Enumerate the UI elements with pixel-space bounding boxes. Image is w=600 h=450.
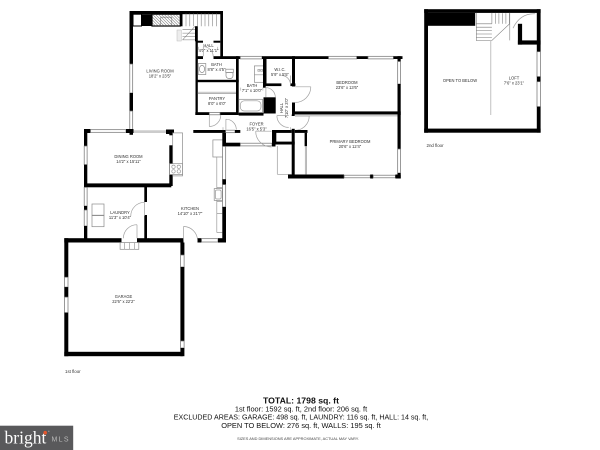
svg-text:20'6" x 12'4": 20'6" x 12'4" — [339, 144, 362, 149]
svg-text:23'6" x 13'6": 23'6" x 13'6" — [336, 85, 359, 90]
svg-text:7'10" x 3'0": 7'10" x 3'0" — [284, 97, 289, 118]
svg-text:18'2" x 23'5": 18'2" x 23'5" — [149, 74, 172, 79]
svg-text:1st floor: 1592 sq. ft, 2nd fl: 1st floor: 1592 sq. ft, 2nd floor: 206 s… — [235, 404, 367, 413]
svg-text:OPEN TO BELOW: OPEN TO BELOW — [443, 78, 477, 83]
svg-text:SIZES AND DIMENSIONS ARE APPRO: SIZES AND DIMENSIONS ARE APPROXIMATE, AC… — [237, 436, 359, 441]
svg-text:OPEN TO BELOW: 276 sq. ft, WAL: OPEN TO BELOW: 276 sq. ft, WALLS: 195 sq… — [221, 421, 381, 430]
svg-text:11'3" x 10'4": 11'3" x 10'4" — [109, 215, 132, 220]
svg-text:8'0" x 6'0": 8'0" x 6'0" — [208, 101, 226, 106]
svg-text:14'10" x 21'7": 14'10" x 21'7" — [178, 211, 203, 216]
svg-text:8'8" x 4'5": 8'8" x 4'5" — [208, 67, 226, 72]
svg-text:MLS: MLS — [52, 437, 70, 444]
svg-text:16'5" x 5'3": 16'5" x 5'3" — [246, 127, 267, 132]
svg-text:22'6" x 22'2": 22'6" x 22'2" — [112, 299, 135, 304]
svg-text:1st floor: 1st floor — [65, 369, 81, 374]
svg-text:14'2" x 15'11": 14'2" x 15'11" — [116, 159, 141, 164]
svg-text:7'6" x 23'1": 7'6" x 23'1" — [504, 81, 525, 86]
svg-text:bright: bright — [5, 428, 47, 448]
svg-text:2nd floor: 2nd floor — [427, 143, 445, 148]
svg-text:5'9" x 5'5": 5'9" x 5'5" — [271, 72, 289, 77]
svg-text:7'1" x 10'0": 7'1" x 10'0" — [242, 88, 263, 93]
